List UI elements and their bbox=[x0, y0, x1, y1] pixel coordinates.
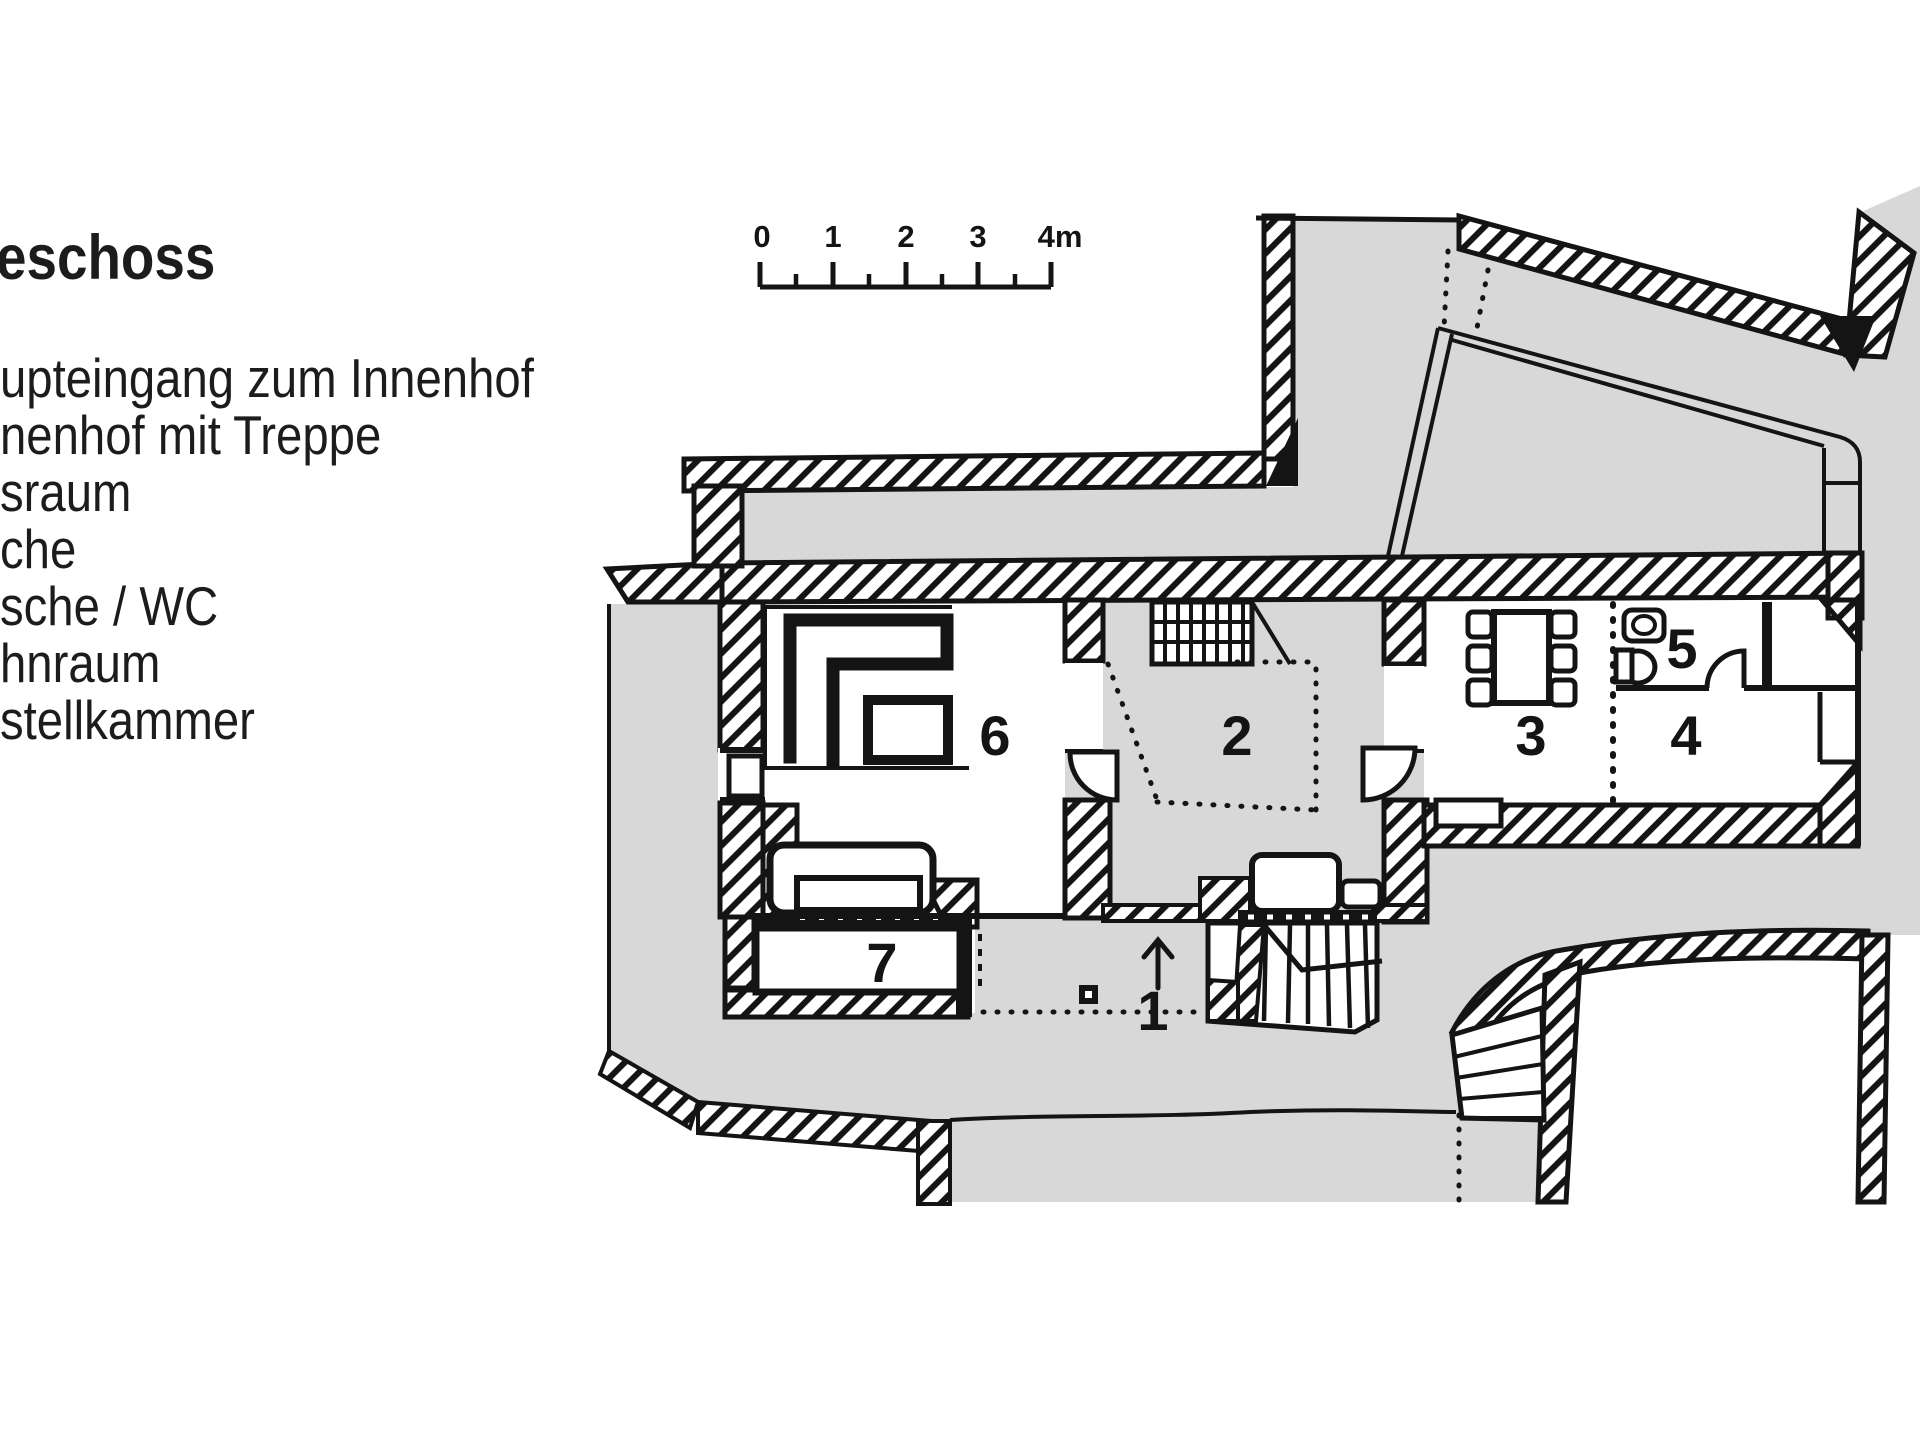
svg-text:1: 1 bbox=[824, 219, 841, 254]
svg-text:2: 2 bbox=[897, 219, 914, 254]
svg-text:0: 0 bbox=[753, 219, 770, 254]
svg-text:3: 3 bbox=[969, 219, 986, 254]
svg-text:7: 7 bbox=[866, 931, 897, 994]
svg-text:4m: 4m bbox=[1038, 219, 1083, 254]
svg-text:3: 3 bbox=[1515, 704, 1546, 767]
svg-text:6: 6 bbox=[979, 704, 1010, 767]
svg-text:5: 5 bbox=[1666, 617, 1697, 680]
svg-text:1: 1 bbox=[1137, 979, 1168, 1042]
svg-text:4: 4 bbox=[1670, 704, 1701, 767]
svg-text:2: 2 bbox=[1221, 704, 1252, 767]
